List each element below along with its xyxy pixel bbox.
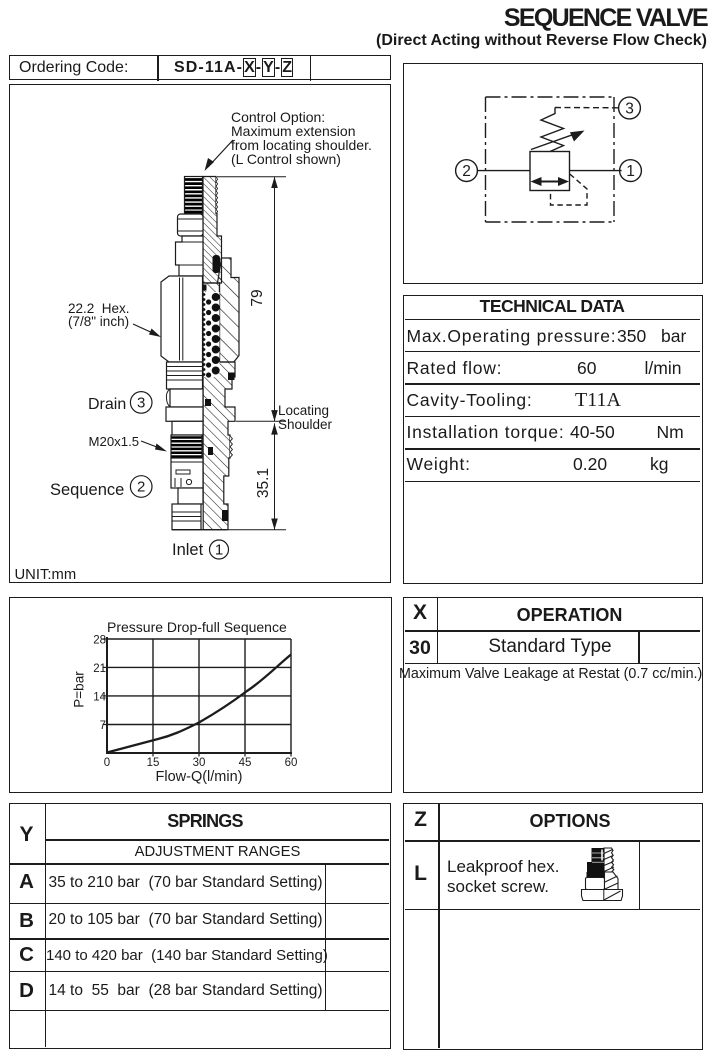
- svg-text:3: 3: [625, 100, 634, 117]
- svg-text:3: 3: [137, 395, 145, 412]
- svg-text:1: 1: [215, 541, 223, 558]
- svg-text:15: 15: [147, 757, 160, 769]
- svg-text:2: 2: [462, 163, 471, 180]
- svg-text:79: 79: [249, 289, 266, 306]
- svg-text:2: 2: [137, 479, 145, 496]
- svg-text:60: 60: [285, 757, 298, 769]
- svg-text:Flow-Q(l/min): Flow-Q(l/min): [156, 769, 243, 785]
- svg-text:0: 0: [104, 757, 110, 769]
- svg-text:7: 7: [100, 720, 106, 732]
- svg-text:14: 14: [93, 691, 106, 703]
- svg-text:45: 45: [239, 757, 252, 769]
- svg-text:28: 28: [93, 635, 106, 647]
- svg-text:30: 30: [193, 757, 206, 769]
- svg-text:P=bar: P=bar: [72, 671, 87, 708]
- svg-text:35.1: 35.1: [255, 468, 272, 498]
- svg-text:21: 21: [93, 663, 106, 675]
- svg-text:1: 1: [626, 163, 635, 180]
